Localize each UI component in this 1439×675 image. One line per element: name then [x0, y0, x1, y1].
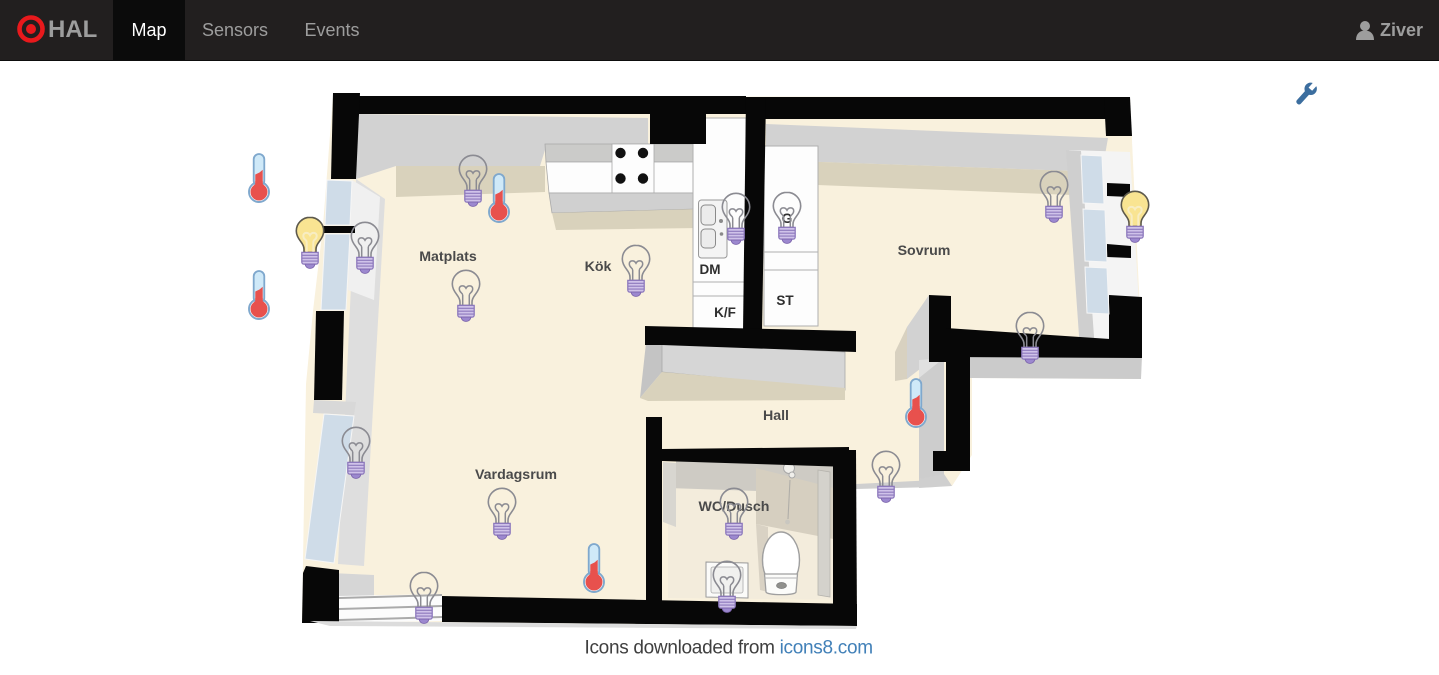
svg-text:ST: ST — [776, 293, 794, 308]
svg-text:Hall: Hall — [763, 408, 789, 424]
svg-text:Icons downloaded from icons8.c: Icons downloaded from icons8.com — [585, 638, 873, 659]
svg-text:Matplats: Matplats — [419, 249, 477, 265]
svg-text:K/F: K/F — [714, 305, 736, 320]
svg-text:Sovrum: Sovrum — [898, 243, 951, 259]
svg-text:HAL: HAL — [48, 16, 97, 43]
svg-text:Kök: Kök — [585, 259, 612, 275]
svg-text:Vardagsrum: Vardagsrum — [475, 467, 557, 483]
svg-text:DM: DM — [700, 262, 721, 277]
